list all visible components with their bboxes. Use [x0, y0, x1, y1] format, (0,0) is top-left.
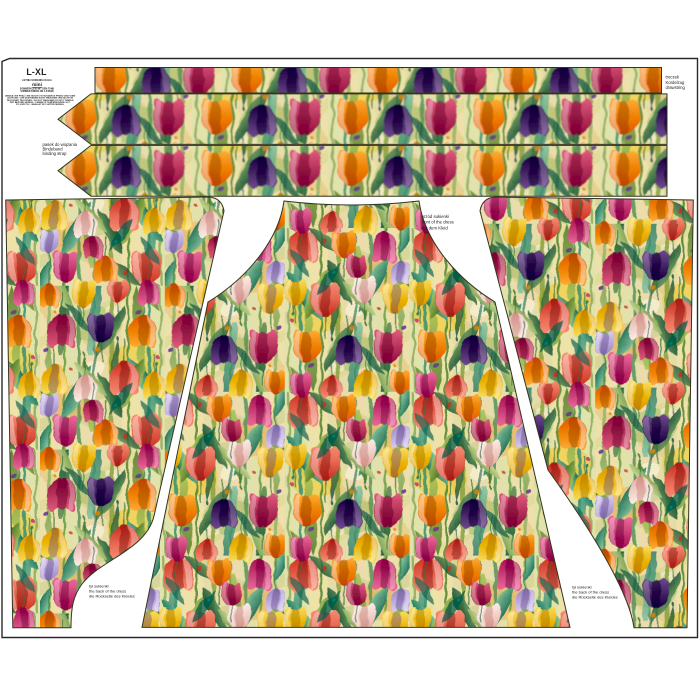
- svg-text:drawstring: drawstring: [666, 85, 686, 90]
- svg-text:PO USZYCIU - WASH AT 30°C AFTE: PO USZYCIU - WASH AT 30°C AFTER SEWING: [16, 103, 64, 106]
- svg-text:przód sukienki: przód sukienki: [422, 214, 450, 219]
- svg-text:L-XL: L-XL: [26, 67, 47, 77]
- svg-text:binding strap: binding strap: [43, 151, 68, 156]
- svg-text:die Rückseite des Kleides: die Rückseite des Kleides: [572, 595, 618, 600]
- svg-text:die Rückseite des Kleides: die Rückseite des Kleides: [89, 594, 135, 599]
- svg-text:SUMMER DRESS ON A STAND: SUMMER DRESS ON A STAND: [20, 90, 54, 93]
- svg-text:mini: mini: [32, 82, 42, 88]
- svg-text:LETNIA SUKIENKA DALIA: LETNIA SUKIENKA DALIA: [22, 79, 52, 82]
- svg-text:front of the dress: front of the dress: [422, 220, 454, 225]
- svg-text:vor dem Kleid: vor dem Kleid: [422, 225, 449, 230]
